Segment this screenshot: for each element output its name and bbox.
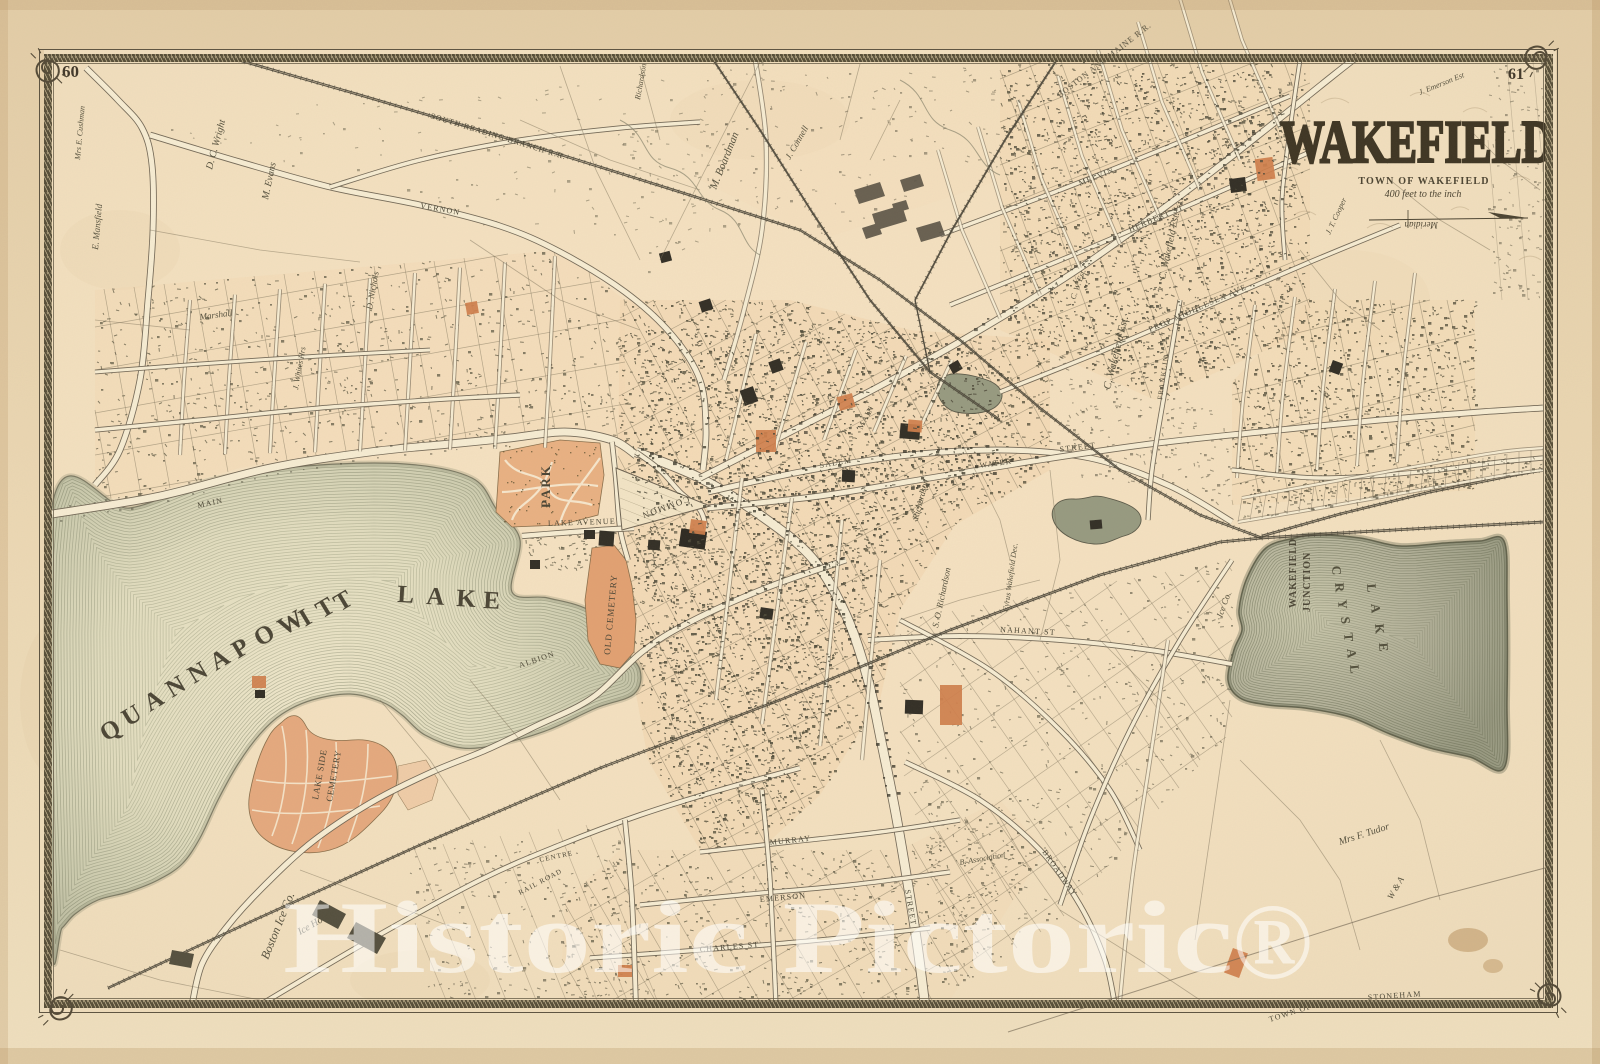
svg-text:®: ® bbox=[1232, 883, 1313, 1002]
svg-text:Historic Pictoric: Historic Pictoric bbox=[283, 881, 1233, 995]
